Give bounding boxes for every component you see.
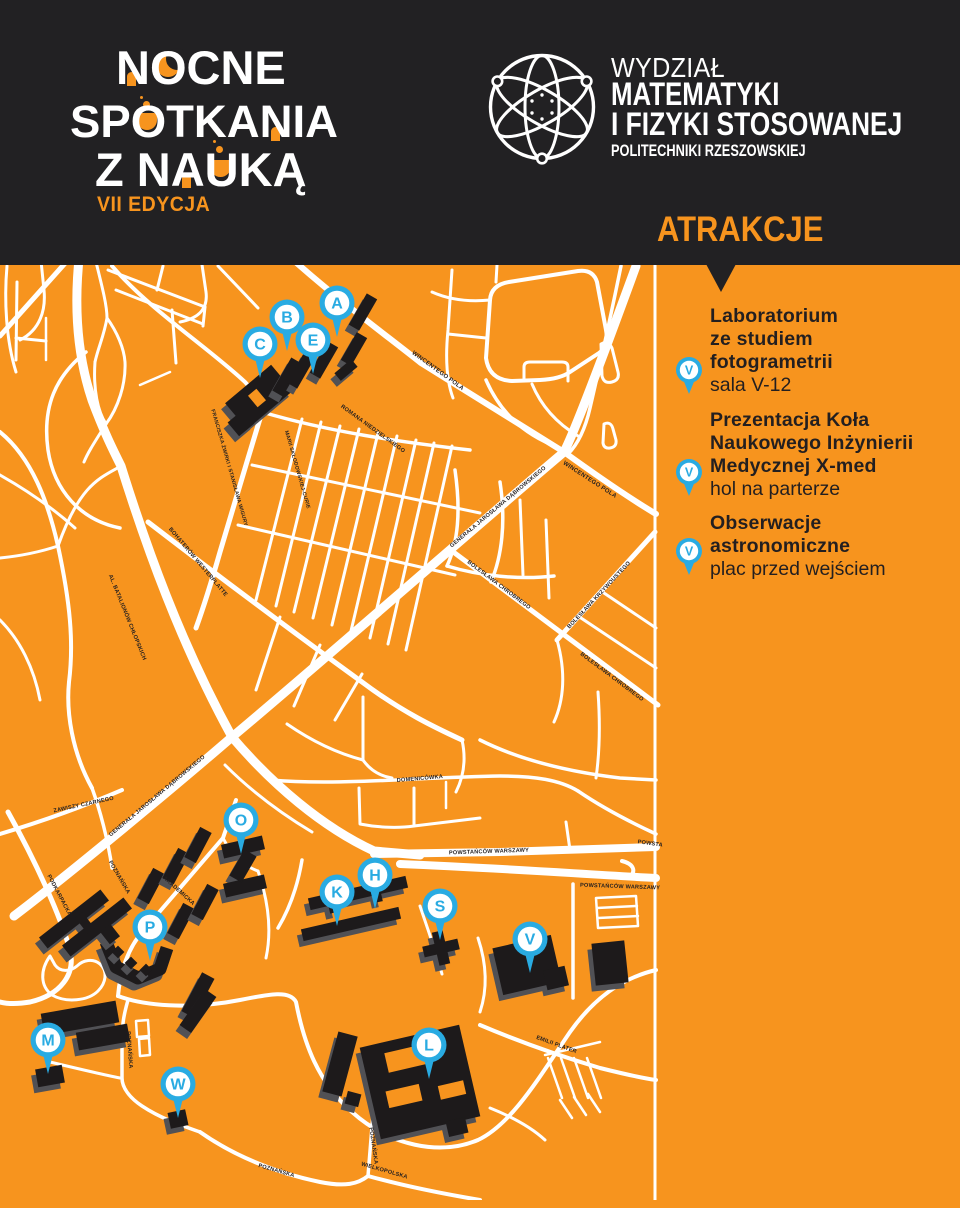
svg-text:V: V — [685, 363, 694, 377]
svg-text:V: V — [685, 544, 694, 558]
svg-text:V: V — [685, 465, 694, 479]
